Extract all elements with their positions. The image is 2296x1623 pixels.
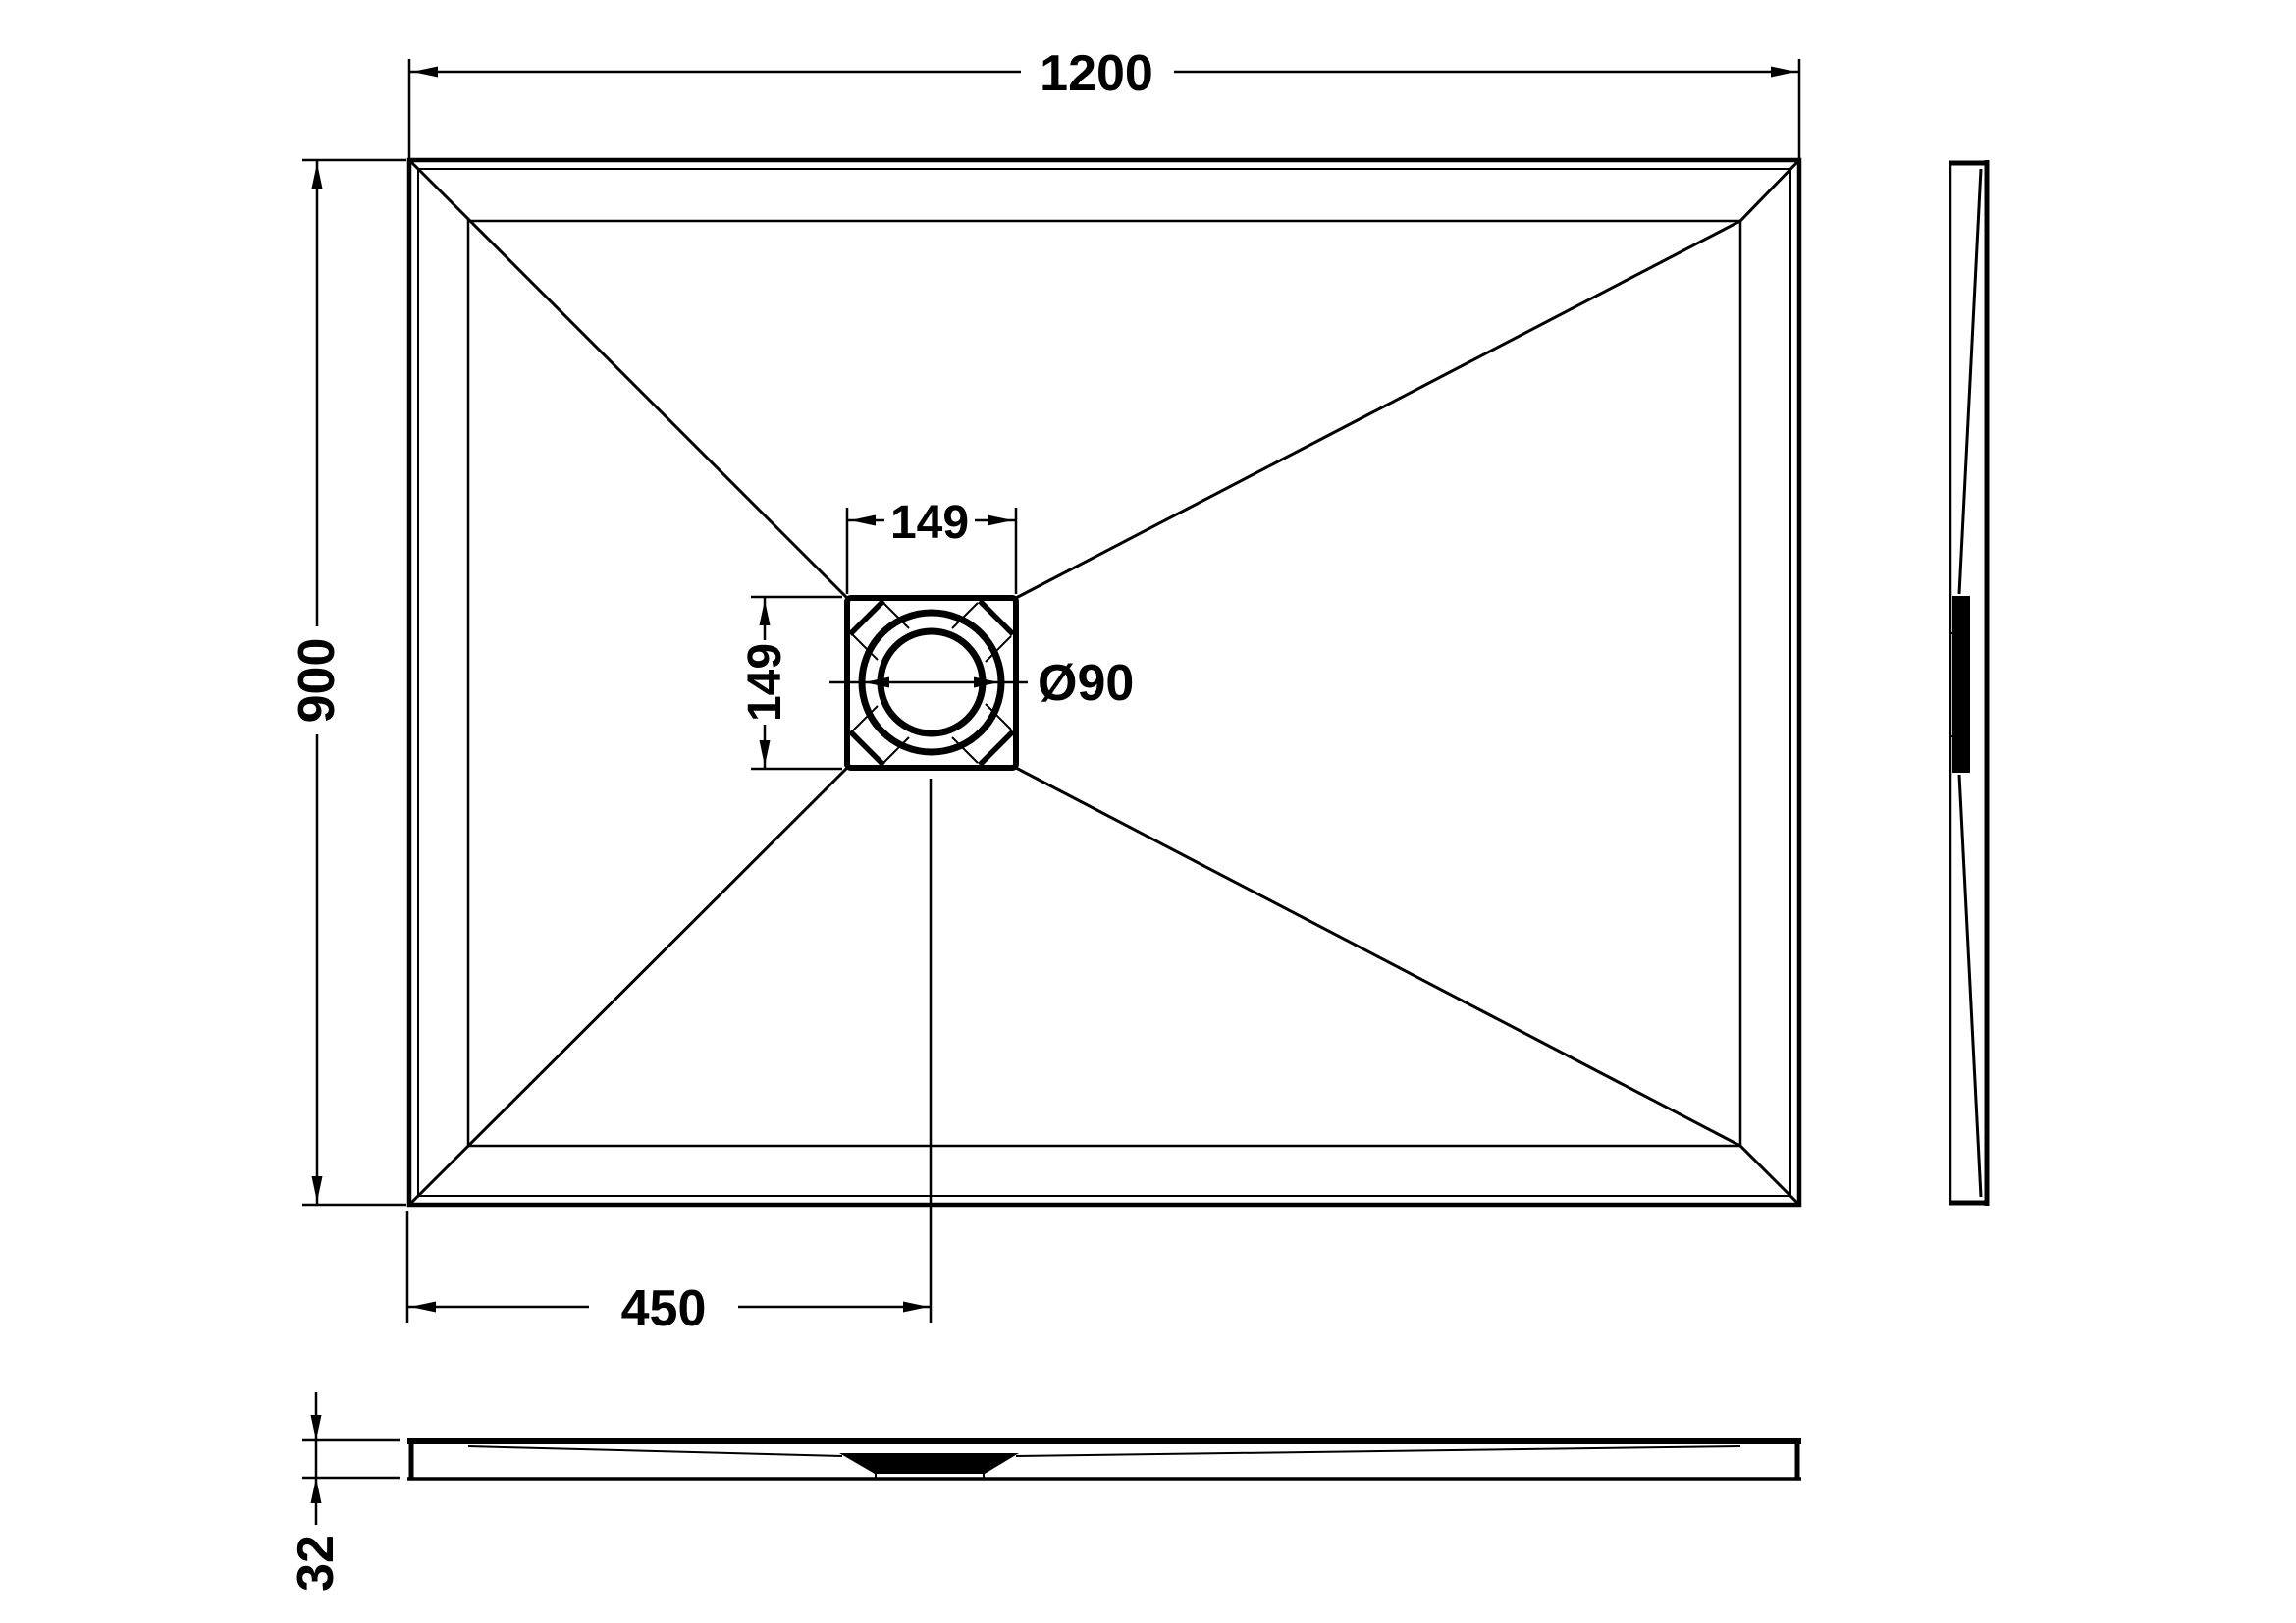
dimension-arrow [760,740,771,766]
dimension-text-149-width: 149 [890,497,969,549]
dimension-arrow [1771,67,1796,78]
technical-drawing-canvas: 1200 900 450 149 149 [0,0,2296,1623]
drain-corner-chamfer-br [980,731,1013,765]
dimension-arrow [312,1176,323,1202]
front-drain-boss [839,1453,1019,1474]
front-elevation [407,1438,1801,1480]
dimension-text-149-depth: 149 [739,643,791,722]
side-slope-lower [1959,775,1981,1197]
drain-corner-chamfer-tl [850,601,883,634]
side-drain-boss [1952,596,1970,773]
side-slope-upper [1959,169,1981,594]
dimension-text-450: 450 [621,1280,707,1337]
dimension-text-diameter: Ø90 [1038,655,1134,712]
dimension-arrow [312,163,323,189]
dimension-arrow [760,600,771,625]
dimension-drain-square-depth: 149 [739,597,842,769]
dimension-arrow [850,515,876,526]
dimension-arrow [410,1302,436,1313]
fold-line-bottom-left [409,768,847,1205]
dimension-thickness: 32 [288,1392,400,1592]
dimension-arrow [903,1302,929,1313]
fold-line-top-right [1016,160,1799,598]
drain-waste [829,598,1028,768]
front-slope-left [468,1446,842,1456]
dimension-arrow [412,67,438,78]
drain-corner-chamfer-bl [850,731,883,765]
dimension-arrow [311,1415,322,1440]
fold-line-top-left [409,160,847,598]
dimension-text-900: 900 [289,638,346,724]
drain-corner-chamfer-tr [980,601,1013,634]
dimension-arrow [988,515,1013,526]
diameter-arrow-left [864,677,889,688]
dimension-arrow [311,1478,322,1503]
fold-line-bottom-right [1016,768,1799,1205]
dimension-drain-diameter: Ø90 [1038,655,1134,712]
dimension-drain-square-width: 149 [847,497,1016,594]
dimension-overall-width: 1200 [409,45,1799,158]
front-slope-right [1016,1446,1740,1456]
dimension-drain-offset: 450 [407,1211,931,1337]
plan-view [409,160,1799,1323]
diameter-arrow-right [974,677,999,688]
side-elevation [1949,160,1989,1206]
dimension-overall-depth: 900 [289,160,406,1205]
dimension-text-1200: 1200 [1040,45,1153,102]
dimension-text-32: 32 [288,1535,345,1592]
